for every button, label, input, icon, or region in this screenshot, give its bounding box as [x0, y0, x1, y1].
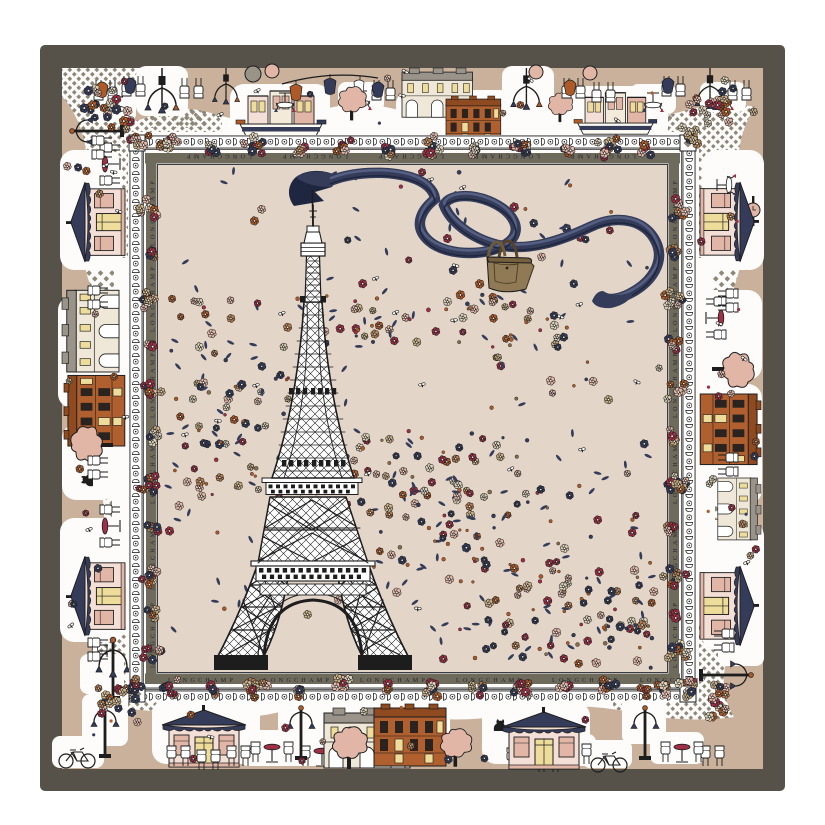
svg-text:LONGCHAMP: LONGCHAMP — [640, 677, 708, 684]
svg-text:LONGCHAMP: LONGCHAMP — [264, 677, 332, 684]
svg-text:LONGCHAMP: LONGCHAMP — [456, 677, 524, 684]
svg-text:LONGCHAMP: LONGCHAMP — [360, 677, 428, 684]
